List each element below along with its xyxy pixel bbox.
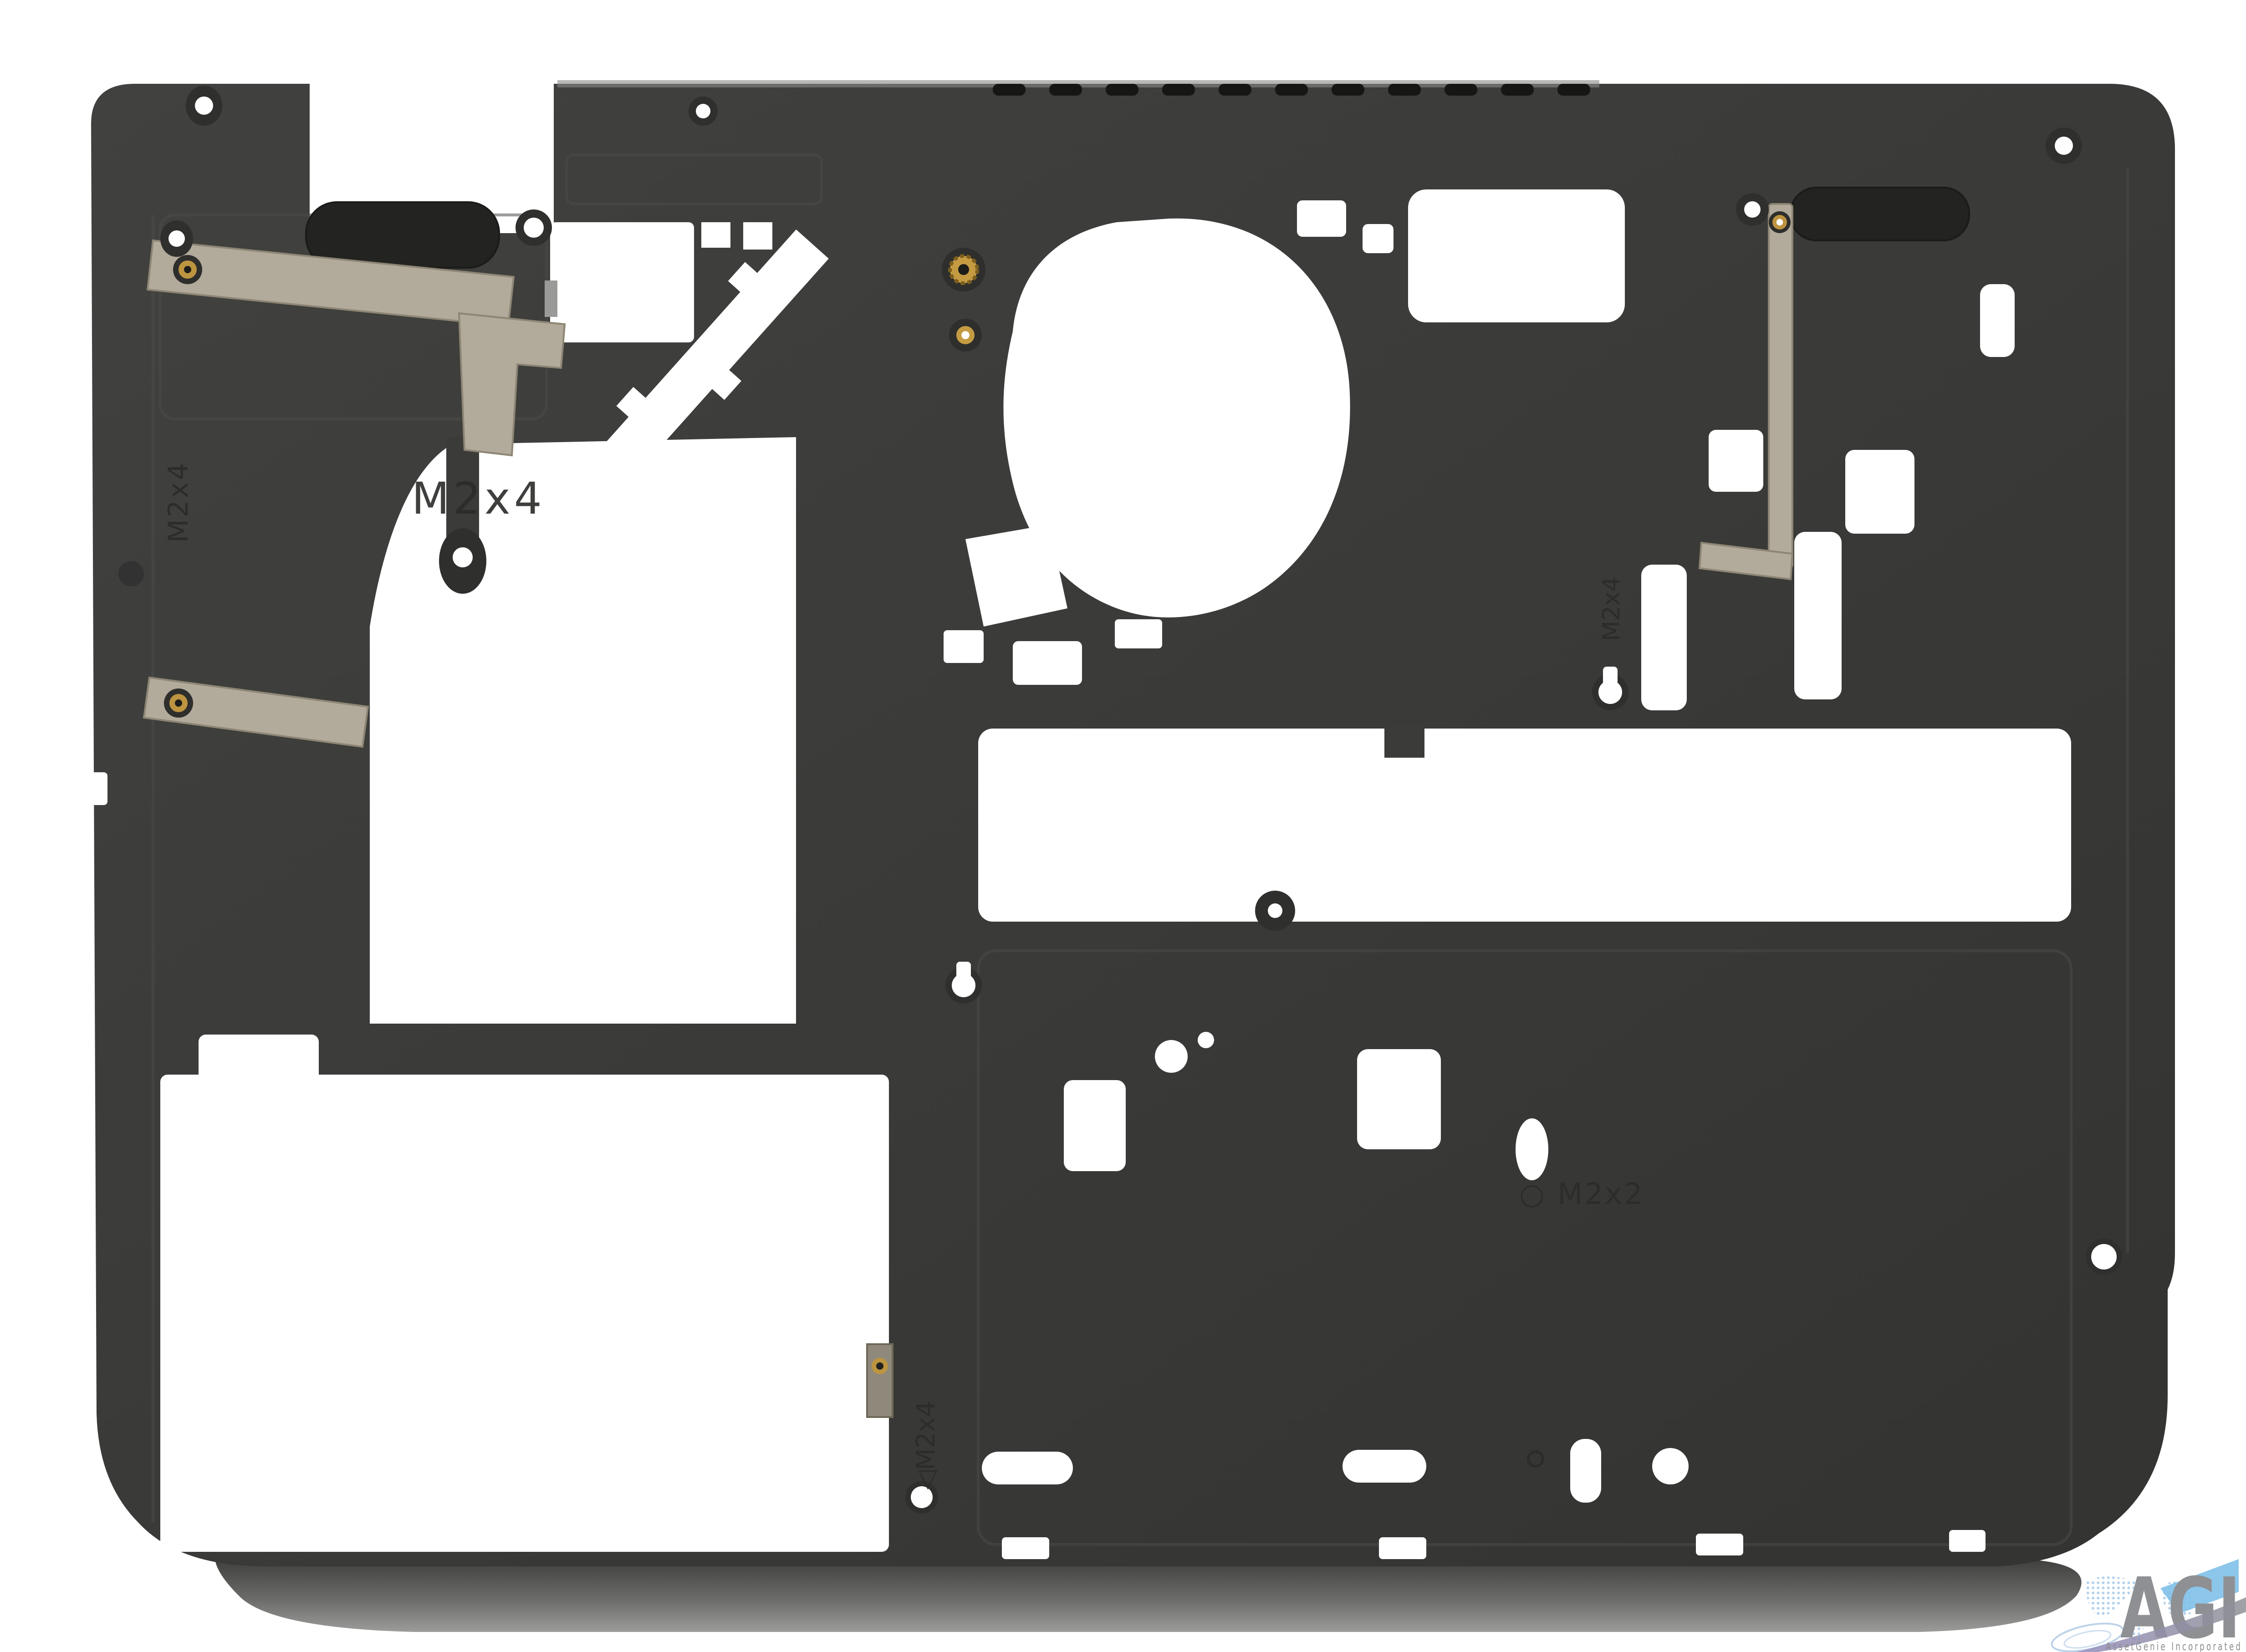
rim-notch [1949, 1530, 1986, 1552]
label-left-rim: M2x4 [163, 461, 194, 543]
connector-cutout [965, 525, 1067, 627]
base-plate-notch [199, 1035, 319, 1089]
screw-hole [160, 220, 193, 257]
base-plate-opening [160, 1075, 889, 1552]
label-right-mid: M2x4 [1598, 576, 1625, 641]
panel-hole [1198, 1032, 1214, 1048]
screw-hole-in-boss [453, 547, 473, 567]
agi-watermark: AGI AssetGenie Incorporated [2049, 1559, 2246, 1652]
label-left-panel: M2x4 [412, 473, 546, 524]
panel-cutout [1064, 1080, 1126, 1171]
label-right-lower: ○ M2x2 [1519, 1178, 1644, 1211]
blind-dimple [118, 561, 144, 586]
bracket-cutout [1845, 450, 1914, 534]
panel-cutout [1357, 1049, 1441, 1149]
photo-stage: M2x4 M2x4 M2x4 ◁M2x4 ○ M2x2 AGI AssetGen… [0, 0, 2246, 1652]
brass-insert-star [942, 248, 985, 291]
tab-cutout [1013, 641, 1082, 685]
io-cutout-small [1297, 200, 1346, 237]
band-tab [1384, 725, 1424, 758]
logo-subtitle: AssetGenie Incorporated [2106, 1640, 2242, 1652]
io-cutout-small [1363, 224, 1394, 253]
screw-hole [689, 97, 718, 126]
screw-hole [2046, 127, 2082, 164]
front-lip [215, 1559, 2082, 1632]
laptop-bottom-case-photo: M2x4 M2x4 M2x4 ◁M2x4 ○ M2x2 AGI AssetGen… [0, 0, 2246, 1652]
rim-notch [1696, 1534, 1743, 1555]
panel-cutout [1516, 1118, 1548, 1180]
panel-slot [1342, 1450, 1426, 1483]
screw-hole [186, 86, 222, 126]
rim-notch [1002, 1537, 1049, 1559]
rim-notch [1379, 1537, 1426, 1559]
keyboard-frame-cutout [550, 222, 694, 342]
left-rim-notch [91, 772, 107, 805]
panel-hole [1652, 1448, 1689, 1484]
screw-hole [1736, 193, 1769, 226]
bracket-cutout [1641, 565, 1687, 710]
bracket-cutout [1794, 532, 1842, 699]
panel-hole [1155, 1040, 1188, 1073]
panel-slot [1570, 1439, 1601, 1503]
rubber-foot-right [1791, 188, 1969, 240]
bracket-cutout [1709, 430, 1763, 492]
metal-tab-left [545, 280, 557, 317]
tab-cutout [944, 630, 984, 663]
io-cutout-large [1408, 189, 1625, 322]
band-boss-hole [1268, 903, 1282, 918]
metal-bracket-bottom [867, 1344, 893, 1417]
brass-grommet-center [949, 319, 982, 352]
panel-slot [982, 1452, 1073, 1484]
mainboard-cutout [370, 437, 796, 1024]
screw-hole [516, 209, 552, 246]
label-bottom-center: ◁M2x4 [911, 1401, 941, 1490]
screw-hole [2086, 1239, 2122, 1275]
battery-slot-cutout [978, 729, 2071, 922]
tab-cutout [1115, 619, 1162, 648]
bracket-cutout [1980, 284, 2015, 357]
